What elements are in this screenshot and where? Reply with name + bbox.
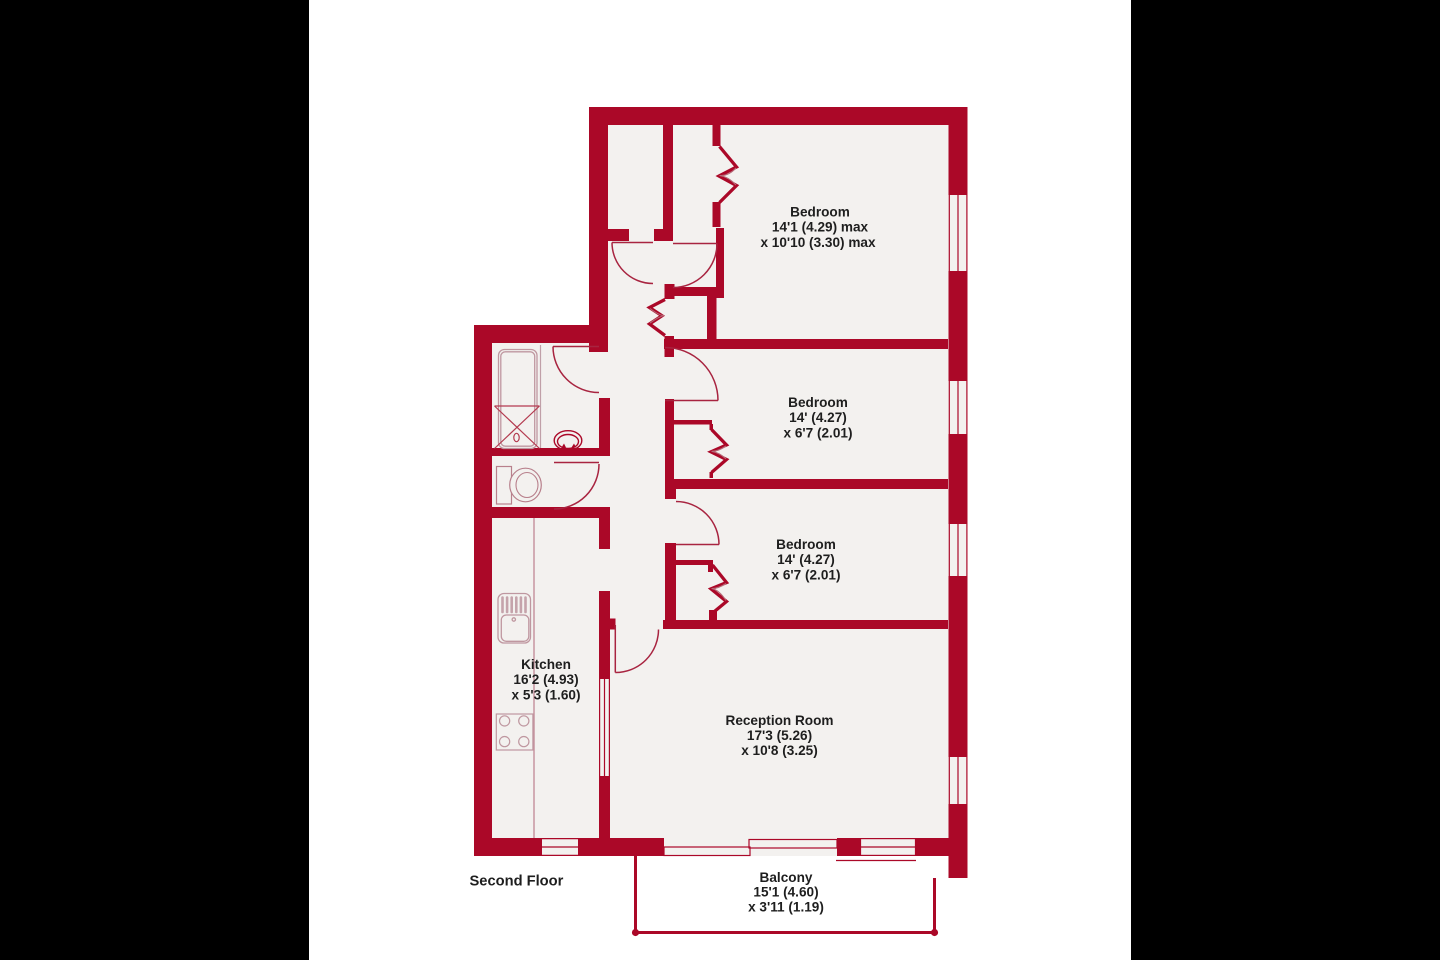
svg-text:Bedroom: Bedroom <box>788 395 848 410</box>
svg-text:16'2 (4.93): 16'2 (4.93) <box>513 672 578 687</box>
svg-text:Reception Room: Reception Room <box>726 713 834 728</box>
svg-text:x 6'7 (2.01): x 6'7 (2.01) <box>772 567 841 582</box>
svg-text:x 3'11 (1.19): x 3'11 (1.19) <box>748 900 824 915</box>
svg-text:Second Floor: Second Floor <box>470 874 564 890</box>
svg-text:Balcony: Balcony <box>760 870 813 885</box>
svg-text:Bedroom: Bedroom <box>790 205 850 220</box>
svg-text:17'3 (5.26): 17'3 (5.26) <box>747 728 812 743</box>
svg-text:x 10'8 (3.25): x 10'8 (3.25) <box>741 743 818 758</box>
svg-text:x 5'3 (1.60): x 5'3 (1.60) <box>512 687 581 702</box>
svg-text:14' (4.27): 14' (4.27) <box>789 410 847 425</box>
svg-text:14'1 (4.29) max: 14'1 (4.29) max <box>772 220 869 235</box>
svg-text:x 10'10 (3.30) max: x 10'10 (3.30) max <box>760 235 876 250</box>
svg-text:Bedroom: Bedroom <box>776 537 836 552</box>
svg-text:Kitchen: Kitchen <box>521 657 571 672</box>
svg-text:x 6'7 (2.01): x 6'7 (2.01) <box>784 425 853 440</box>
svg-text:15'1 (4.60): 15'1 (4.60) <box>753 885 818 900</box>
svg-text:14' (4.27): 14' (4.27) <box>777 552 835 567</box>
